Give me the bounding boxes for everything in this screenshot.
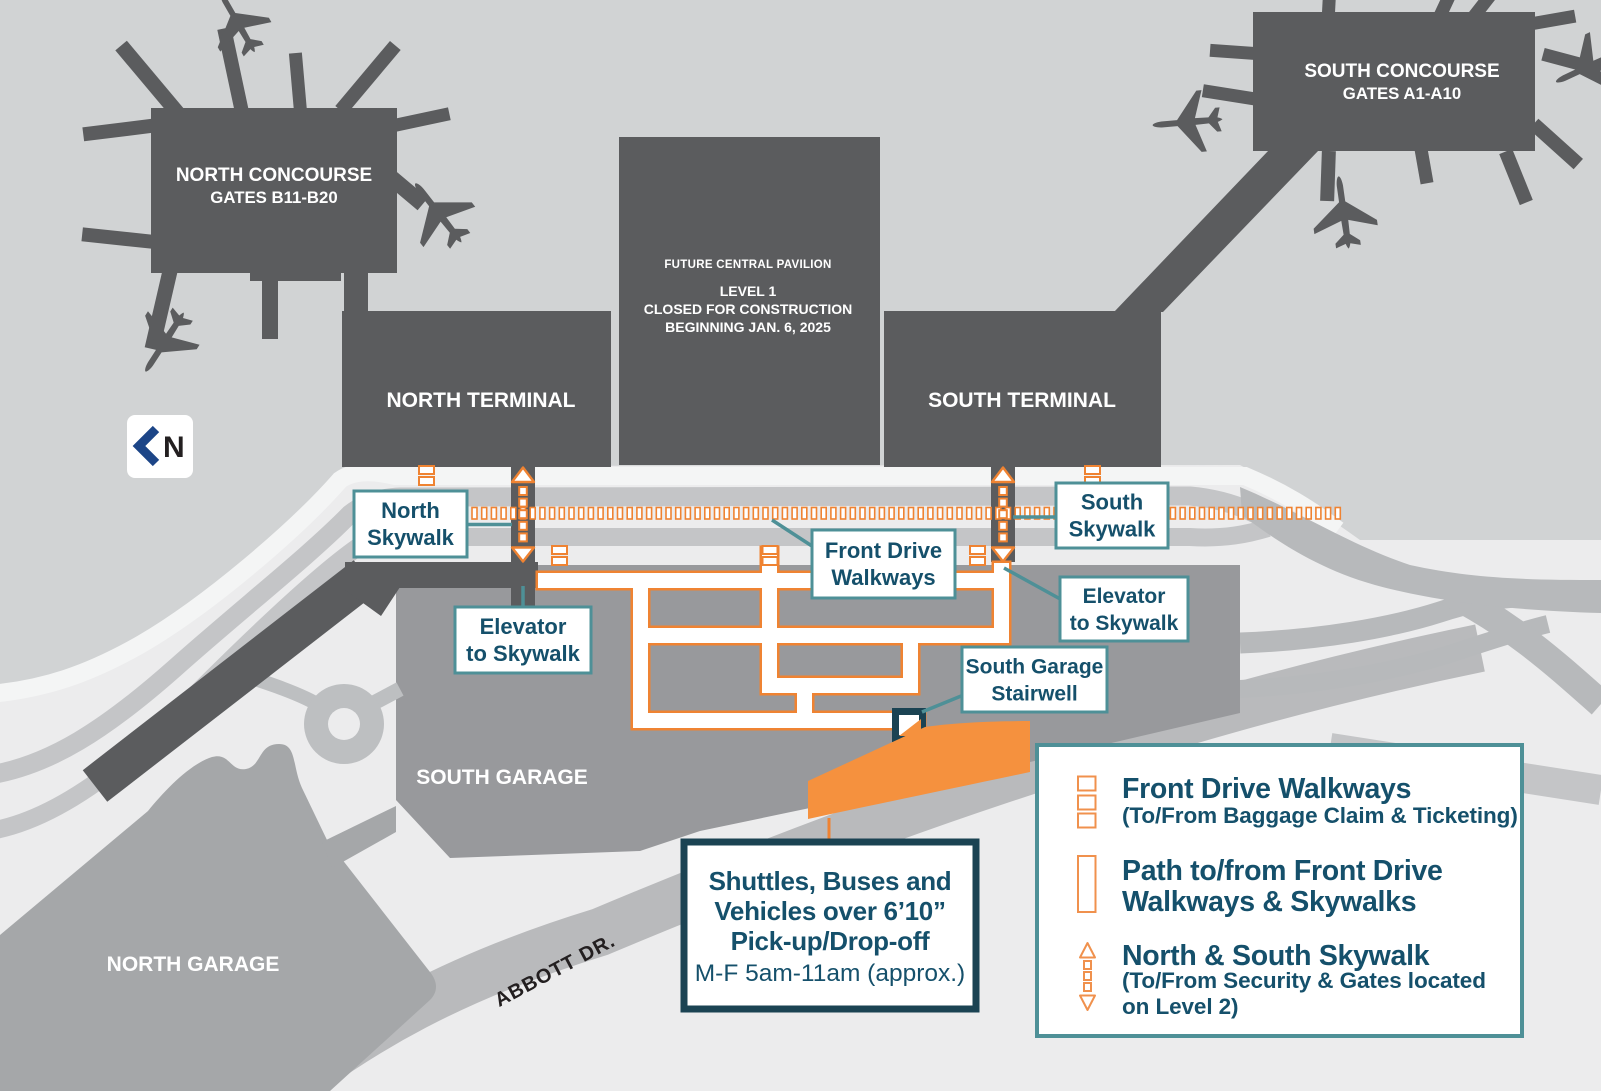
svg-text:SOUTH TERMINAL: SOUTH TERMINAL — [928, 389, 1116, 412]
svg-text:(To/From Security & Gates loca: (To/From Security & Gates located — [1122, 968, 1486, 993]
svg-text:N: N — [163, 431, 185, 464]
svg-text:NORTH CONCOURSE: NORTH CONCOURSE — [176, 165, 372, 186]
svg-text:CLOSED FOR CONSTRUCTION: CLOSED FOR CONSTRUCTION — [644, 301, 852, 317]
svg-text:Skywalk: Skywalk — [1069, 517, 1157, 542]
svg-text:NORTH GARAGE: NORTH GARAGE — [107, 953, 280, 976]
svg-text:South Garage: South Garage — [966, 655, 1104, 678]
svg-text:Path to/from Front Drive: Path to/from Front Drive — [1122, 855, 1443, 887]
svg-text:LEVEL 1: LEVEL 1 — [720, 283, 777, 299]
svg-text:GATES A1-A10: GATES A1-A10 — [1343, 84, 1461, 103]
svg-text:to Skywalk: to Skywalk — [1070, 612, 1179, 635]
svg-text:Vehicles over 6’10”: Vehicles over 6’10” — [714, 896, 945, 926]
svg-text:South: South — [1081, 490, 1143, 515]
svg-text:SOUTH CONCOURSE: SOUTH CONCOURSE — [1304, 61, 1499, 82]
svg-text:NORTH TERMINAL: NORTH TERMINAL — [387, 389, 576, 412]
svg-text:Walkways & Skywalks: Walkways & Skywalks — [1122, 886, 1416, 918]
svg-text:BEGINNING JAN. 6, 2025: BEGINNING JAN. 6, 2025 — [665, 319, 831, 335]
svg-text:Shuttles, Buses and: Shuttles, Buses and — [709, 866, 952, 896]
svg-text:(To/From Baggage Claim & Ticke: (To/From Baggage Claim & Ticketing) — [1122, 803, 1518, 828]
svg-text:FUTURE CENTRAL PAVILION: FUTURE CENTRAL PAVILION — [664, 259, 831, 271]
svg-text:Stairwell: Stairwell — [991, 682, 1077, 705]
svg-text:Pick-up/Drop-off: Pick-up/Drop-off — [731, 926, 930, 956]
svg-text:North: North — [381, 498, 440, 523]
svg-text:Skywalk: Skywalk — [367, 525, 455, 550]
svg-text:to Skywalk: to Skywalk — [466, 641, 580, 666]
svg-text:Walkways: Walkways — [831, 565, 935, 590]
svg-text:GATES B11-B20: GATES B11-B20 — [210, 188, 337, 207]
svg-text:on Level 2): on Level 2) — [1122, 994, 1238, 1019]
svg-text:Elevator: Elevator — [480, 614, 567, 639]
svg-text:SOUTH GARAGE: SOUTH GARAGE — [416, 766, 588, 789]
svg-text:Front Drive Walkways: Front Drive Walkways — [1122, 773, 1411, 805]
svg-text:M-F 5am-11am (approx.): M-F 5am-11am (approx.) — [695, 960, 965, 987]
svg-text:Elevator: Elevator — [1083, 585, 1166, 608]
svg-text:Front Drive: Front Drive — [825, 538, 942, 563]
